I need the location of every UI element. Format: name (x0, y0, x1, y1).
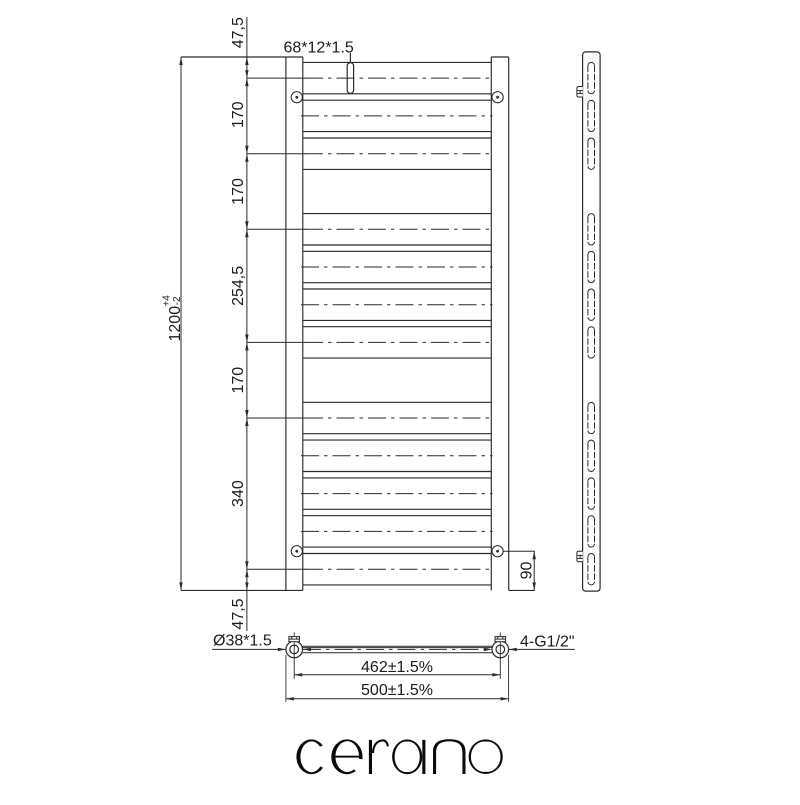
svg-text:-2: -2 (172, 296, 183, 305)
svg-text:47,5: 47,5 (230, 17, 247, 48)
svg-text:Ø38*1.5: Ø38*1.5 (213, 633, 272, 650)
svg-text:340: 340 (230, 480, 247, 507)
svg-text:1200: 1200 (167, 306, 184, 342)
svg-text:4-G1/2": 4-G1/2" (520, 634, 575, 651)
svg-text:47,5: 47,5 (230, 598, 247, 629)
svg-text:254,5: 254,5 (230, 266, 247, 306)
svg-text:68*12*1.5: 68*12*1.5 (284, 40, 354, 57)
svg-text:170: 170 (230, 101, 247, 128)
svg-text:170: 170 (230, 367, 247, 394)
svg-text:90: 90 (519, 562, 536, 580)
svg-text:+4: +4 (162, 295, 173, 307)
svg-text:500±1.5%: 500±1.5% (361, 682, 433, 699)
svg-text:170: 170 (230, 178, 247, 205)
svg-text:462±1.5%: 462±1.5% (361, 659, 433, 676)
